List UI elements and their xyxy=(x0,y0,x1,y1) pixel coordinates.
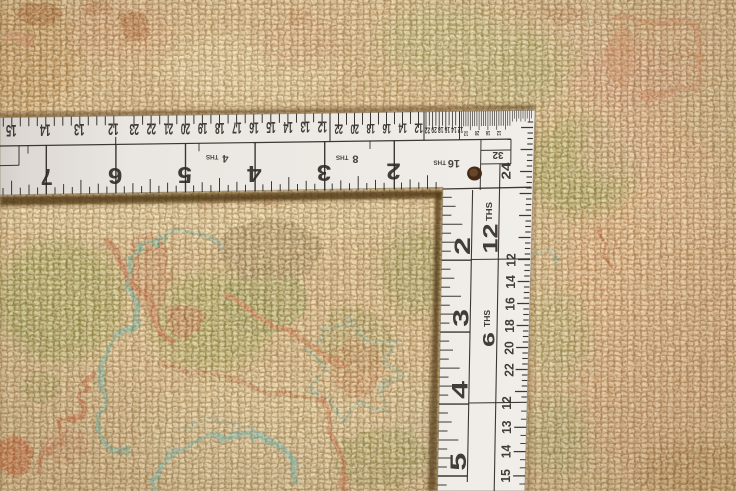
svg-text:12: 12 xyxy=(463,129,468,135)
svg-text:16: 16 xyxy=(249,118,259,135)
svg-text:16: 16 xyxy=(448,157,460,169)
svg-text:20: 20 xyxy=(351,121,360,136)
svg-text:4: 4 xyxy=(247,161,262,187)
svg-text:7: 7 xyxy=(41,164,53,190)
svg-text:14: 14 xyxy=(451,125,457,134)
svg-text:THS: THS xyxy=(206,153,219,160)
svg-text:22: 22 xyxy=(501,363,516,377)
svg-text:18: 18 xyxy=(366,121,375,136)
svg-text:16: 16 xyxy=(503,297,518,311)
svg-text:18: 18 xyxy=(438,125,444,134)
svg-text:12: 12 xyxy=(457,125,463,134)
svg-text:3: 3 xyxy=(449,309,474,327)
svg-text:13: 13 xyxy=(499,421,514,435)
svg-text:THS: THS xyxy=(483,309,492,327)
svg-text:14: 14 xyxy=(40,121,51,140)
svg-text:14: 14 xyxy=(503,274,518,288)
svg-text:23: 23 xyxy=(129,120,139,137)
svg-text:4: 4 xyxy=(447,380,472,399)
svg-text:18: 18 xyxy=(215,119,225,136)
svg-text:17: 17 xyxy=(232,119,242,136)
svg-text:12: 12 xyxy=(108,120,119,139)
svg-text:22: 22 xyxy=(147,120,157,137)
svg-text:18: 18 xyxy=(502,319,517,333)
svg-text:20: 20 xyxy=(431,125,437,134)
svg-text:15: 15 xyxy=(6,121,17,140)
svg-text:14: 14 xyxy=(398,121,407,136)
svg-text:12: 12 xyxy=(318,117,328,134)
svg-text:8: 8 xyxy=(352,152,358,164)
svg-text:32: 32 xyxy=(492,149,503,161)
svg-text:12: 12 xyxy=(503,253,518,267)
svg-text:22: 22 xyxy=(335,122,344,137)
svg-text:20: 20 xyxy=(502,341,517,355)
svg-text:21: 21 xyxy=(164,120,174,137)
svg-text:12: 12 xyxy=(499,396,514,410)
svg-text:2: 2 xyxy=(386,159,401,185)
svg-text:20: 20 xyxy=(474,129,479,135)
svg-text:15: 15 xyxy=(498,469,513,483)
svg-text:15: 15 xyxy=(266,118,276,135)
svg-text:12: 12 xyxy=(415,120,424,135)
svg-text:13: 13 xyxy=(300,118,310,135)
svg-text:16: 16 xyxy=(485,129,490,135)
svg-text:13: 13 xyxy=(74,120,85,139)
svg-text:2: 2 xyxy=(450,237,475,255)
svg-text:12: 12 xyxy=(496,129,501,135)
svg-text:THS: THS xyxy=(433,158,446,165)
svg-text:19: 19 xyxy=(198,119,208,136)
svg-text:22: 22 xyxy=(424,125,430,134)
svg-text:5: 5 xyxy=(446,453,471,471)
svg-text:14: 14 xyxy=(283,118,293,135)
svg-text:3: 3 xyxy=(317,160,332,186)
svg-text:THS: THS xyxy=(336,154,349,161)
svg-text:20: 20 xyxy=(181,119,191,136)
svg-text:24: 24 xyxy=(499,162,514,180)
svg-text:5: 5 xyxy=(177,162,192,188)
svg-text:6: 6 xyxy=(480,332,499,347)
svg-text:6: 6 xyxy=(108,163,123,189)
svg-text:14: 14 xyxy=(498,444,513,458)
svg-text:12: 12 xyxy=(480,224,503,254)
svg-text:THS: THS xyxy=(485,201,494,221)
svg-text:4: 4 xyxy=(222,152,229,164)
svg-text:16: 16 xyxy=(382,121,391,136)
svg-text:16: 16 xyxy=(444,125,450,134)
